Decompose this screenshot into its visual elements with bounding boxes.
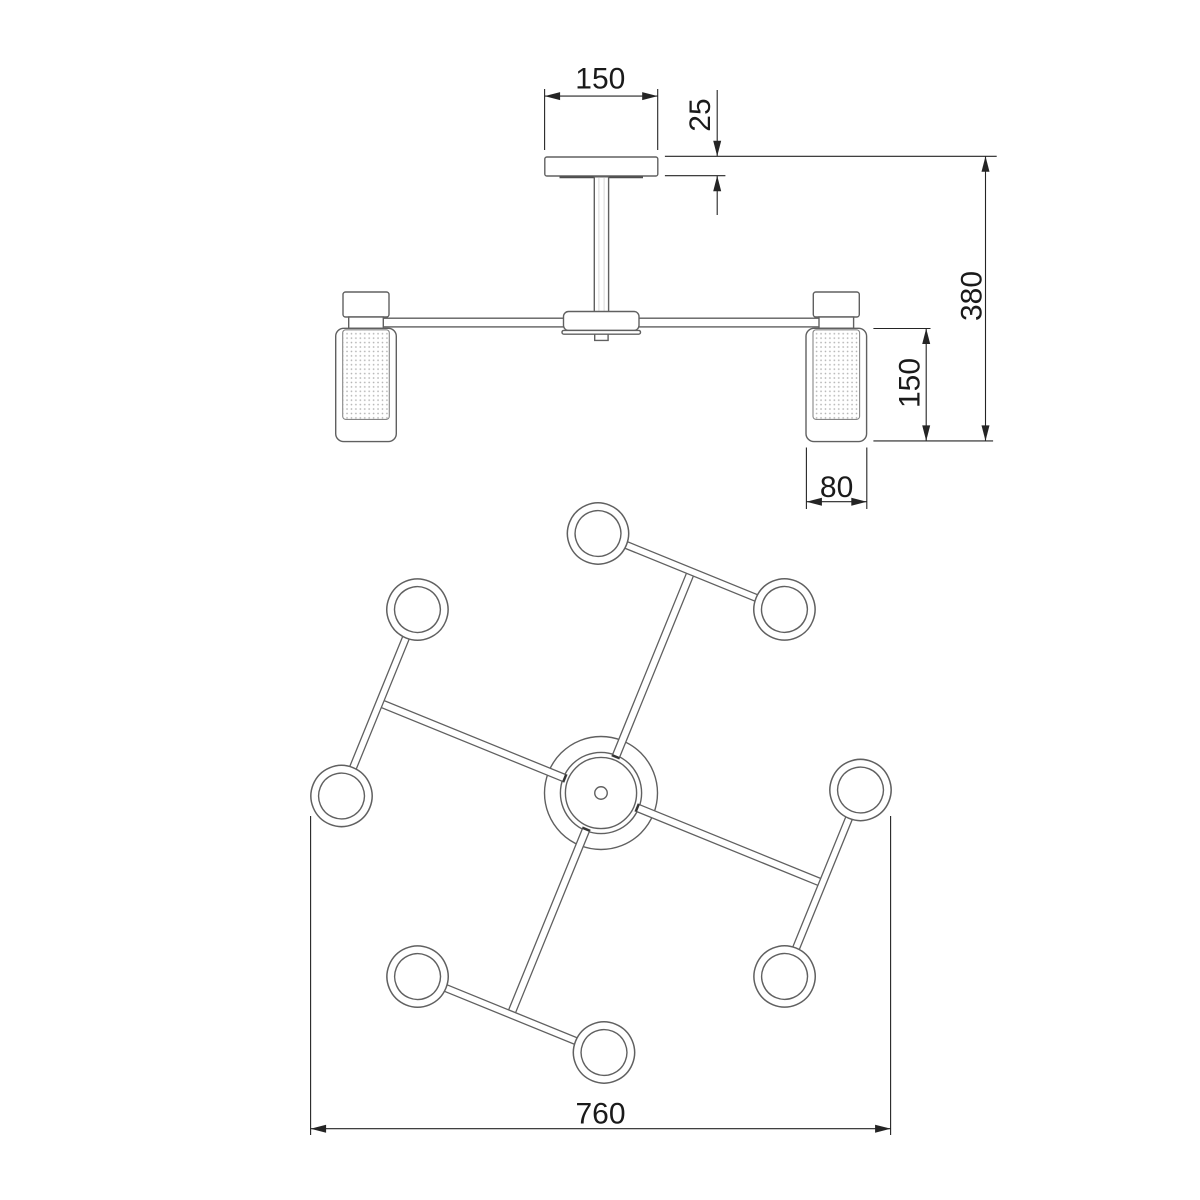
svg-text:150: 150 [575,63,625,96]
svg-text:760: 760 [575,1097,625,1130]
svg-text:380: 380 [956,271,989,321]
svg-text:25: 25 [684,98,717,131]
svg-text:150: 150 [894,358,927,408]
svg-text:80: 80 [820,471,853,504]
